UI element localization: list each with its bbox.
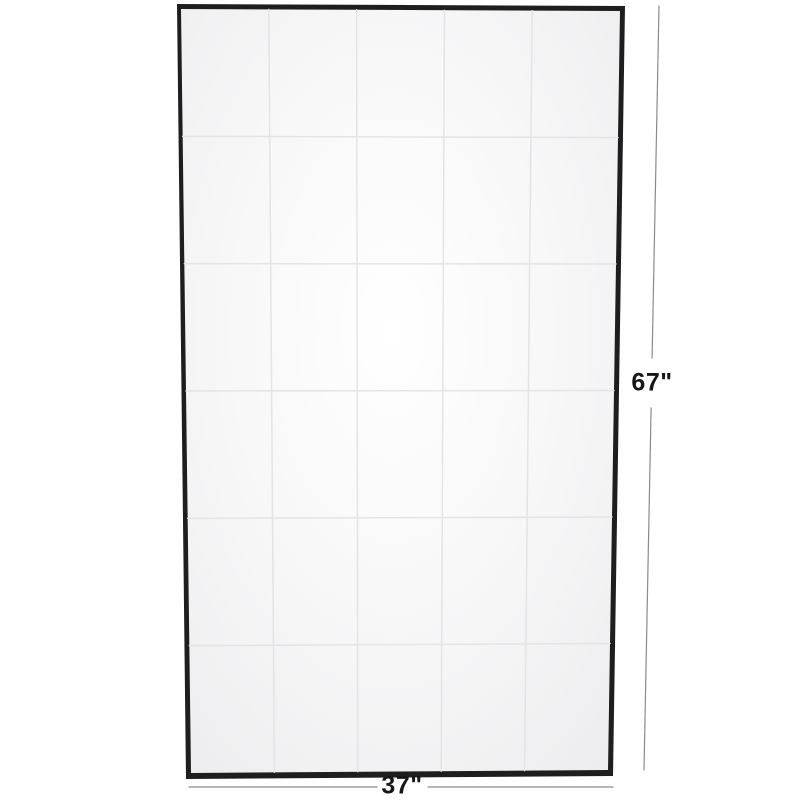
mirror-illustration (0, 0, 800, 800)
height-dimension-label: 67" (631, 369, 672, 398)
width-dimension-label: 37" (381, 772, 422, 800)
product-dimension-diagram: 67" 37" (0, 0, 800, 800)
